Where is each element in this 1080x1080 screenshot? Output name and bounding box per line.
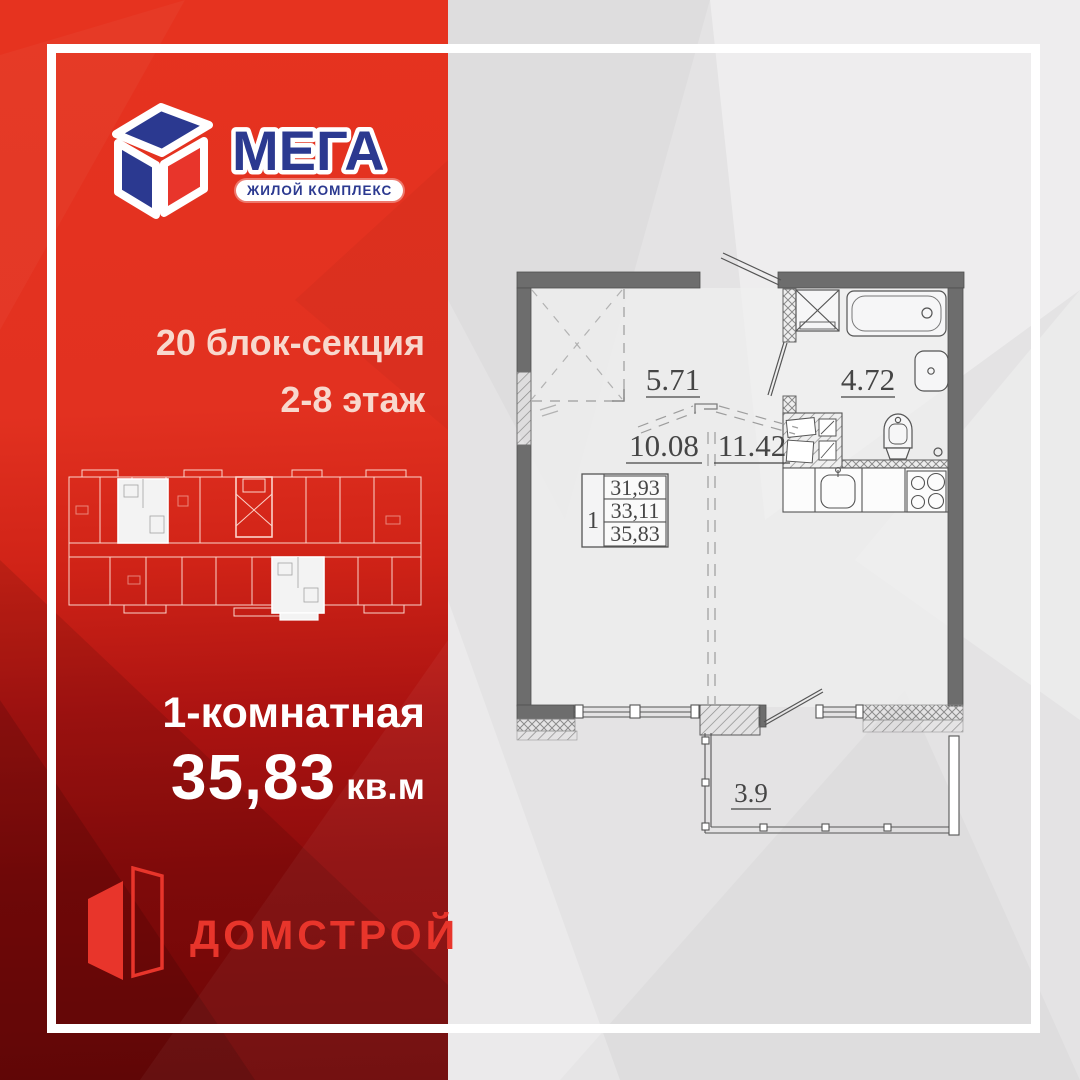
backsplash <box>842 460 948 468</box>
toilet <box>884 414 912 459</box>
kitchen-counter <box>783 460 948 512</box>
table-living-area: 31,93 <box>610 475 660 500</box>
left-wall-window <box>517 372 531 445</box>
label-wardrobe-area: 5.71 <box>646 362 700 397</box>
label-balcony-area: 3.9 <box>734 778 768 808</box>
insulation-right-2 <box>863 720 963 732</box>
table-area-no-balcony: 33,11 <box>611 498 660 523</box>
insulation-right <box>863 705 963 720</box>
table-unit-number: 1 <box>587 508 599 534</box>
utility-block <box>783 413 842 468</box>
insulation-left-2 <box>517 731 577 740</box>
apartment-floor-plan: 1 31,93 33,11 35,83 5.71 4.72 10.08 11.4… <box>0 0 1080 1080</box>
washbasin <box>915 351 948 391</box>
label-bathroom-area: 4.72 <box>841 362 895 397</box>
wall-stub <box>783 396 796 413</box>
poster-canvas: МЕГА ЖИЛОЙ КОМПЛЕКС 20 блок-секция 2-8 э… <box>0 0 1080 1080</box>
area-table: 1 31,93 33,11 35,83 <box>582 474 668 547</box>
bathroom-wall <box>783 289 796 342</box>
bathtub <box>847 291 946 336</box>
insulation-left <box>517 719 575 731</box>
bottom-pier <box>700 705 760 735</box>
table-total-area: 35,83 <box>610 521 660 546</box>
shower <box>796 290 839 331</box>
label-living-area: 10.08 <box>629 428 699 463</box>
content-layer: МЕГА ЖИЛОЙ КОМПЛЕКС 20 блок-секция 2-8 э… <box>0 0 1080 1080</box>
label-kitchen-area: 11.42 <box>718 428 787 463</box>
